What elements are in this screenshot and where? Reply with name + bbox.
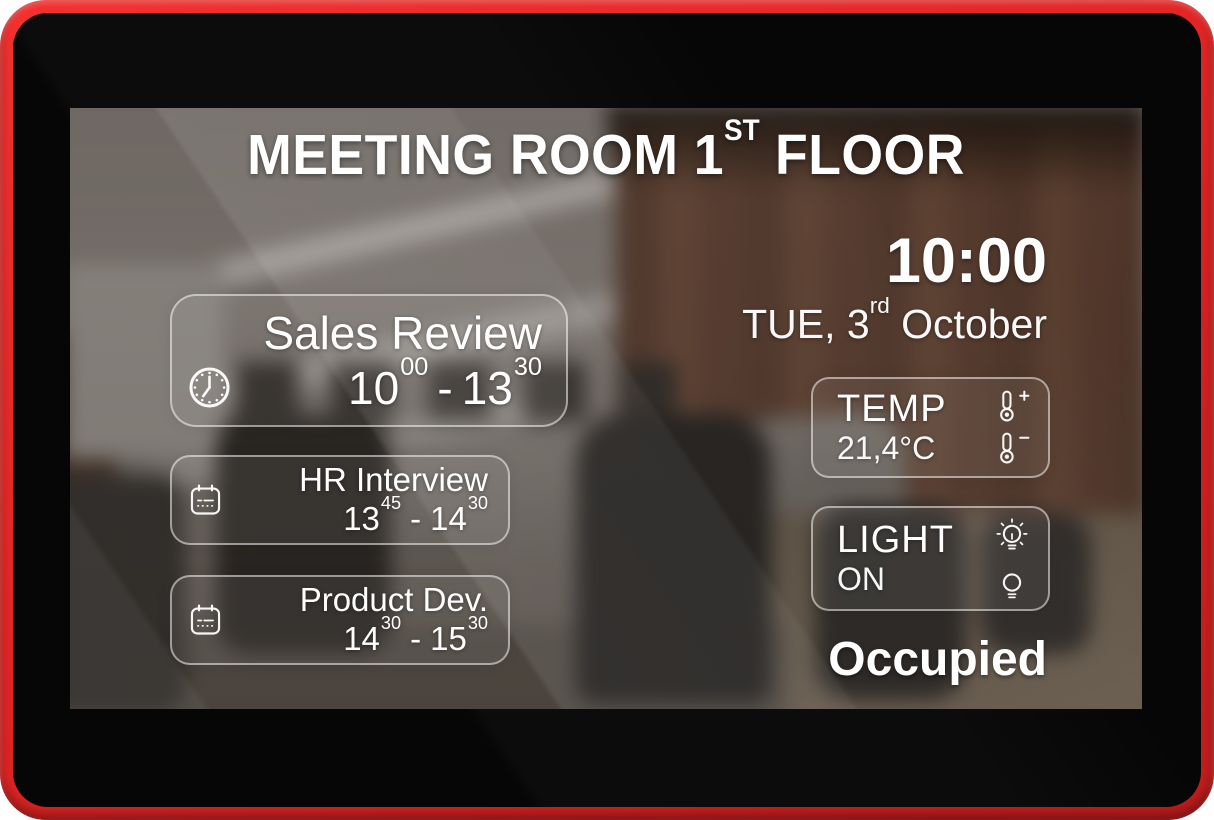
- event-card-upcoming-1[interactable]: HR Interview 1345-1430: [170, 455, 510, 545]
- room-panel-device: MEETING ROOM 1ST FLOOR 10:00 TUE, 3rd Oc…: [0, 0, 1214, 820]
- date-ordinal: rd: [870, 293, 890, 318]
- light-widget: LIGHT ON: [811, 506, 1050, 611]
- thermometer-plus-icon[interactable]: [991, 389, 1032, 424]
- calendar-icon: [186, 481, 225, 520]
- calendar-icon: [186, 601, 225, 640]
- light-value: ON: [837, 562, 992, 598]
- temperature-widget: TEMP 21,4°C: [811, 377, 1050, 478]
- event-time: 1430-1530: [343, 620, 488, 659]
- light-label: LIGHT: [837, 519, 992, 562]
- temperature-label: TEMP: [837, 388, 991, 431]
- screen: MEETING ROOM 1ST FLOOR 10:00 TUE, 3rd Oc…: [70, 108, 1142, 709]
- clock-icon: [186, 364, 233, 411]
- temperature-value: 21,4°C: [837, 431, 991, 467]
- thermometer-minus-icon[interactable]: [991, 431, 1032, 466]
- status-badge: Occupied: [828, 632, 1047, 687]
- event-card-current[interactable]: Sales Review 1000-1330: [170, 294, 568, 427]
- page-title: MEETING ROOM 1ST FLOOR: [102, 122, 1110, 188]
- light-on-icon[interactable]: [992, 515, 1032, 555]
- current-date: TUE, 3rd October: [742, 302, 1047, 347]
- light-off-icon[interactable]: [992, 562, 1032, 602]
- event-time: 1345-1430: [343, 500, 488, 539]
- event-card-upcoming-2[interactable]: Product Dev. 1430-1530: [170, 575, 510, 665]
- title-ordinal: ST: [724, 114, 760, 147]
- event-time: 1000-1330: [348, 361, 542, 415]
- current-time: 10:00: [886, 230, 1047, 293]
